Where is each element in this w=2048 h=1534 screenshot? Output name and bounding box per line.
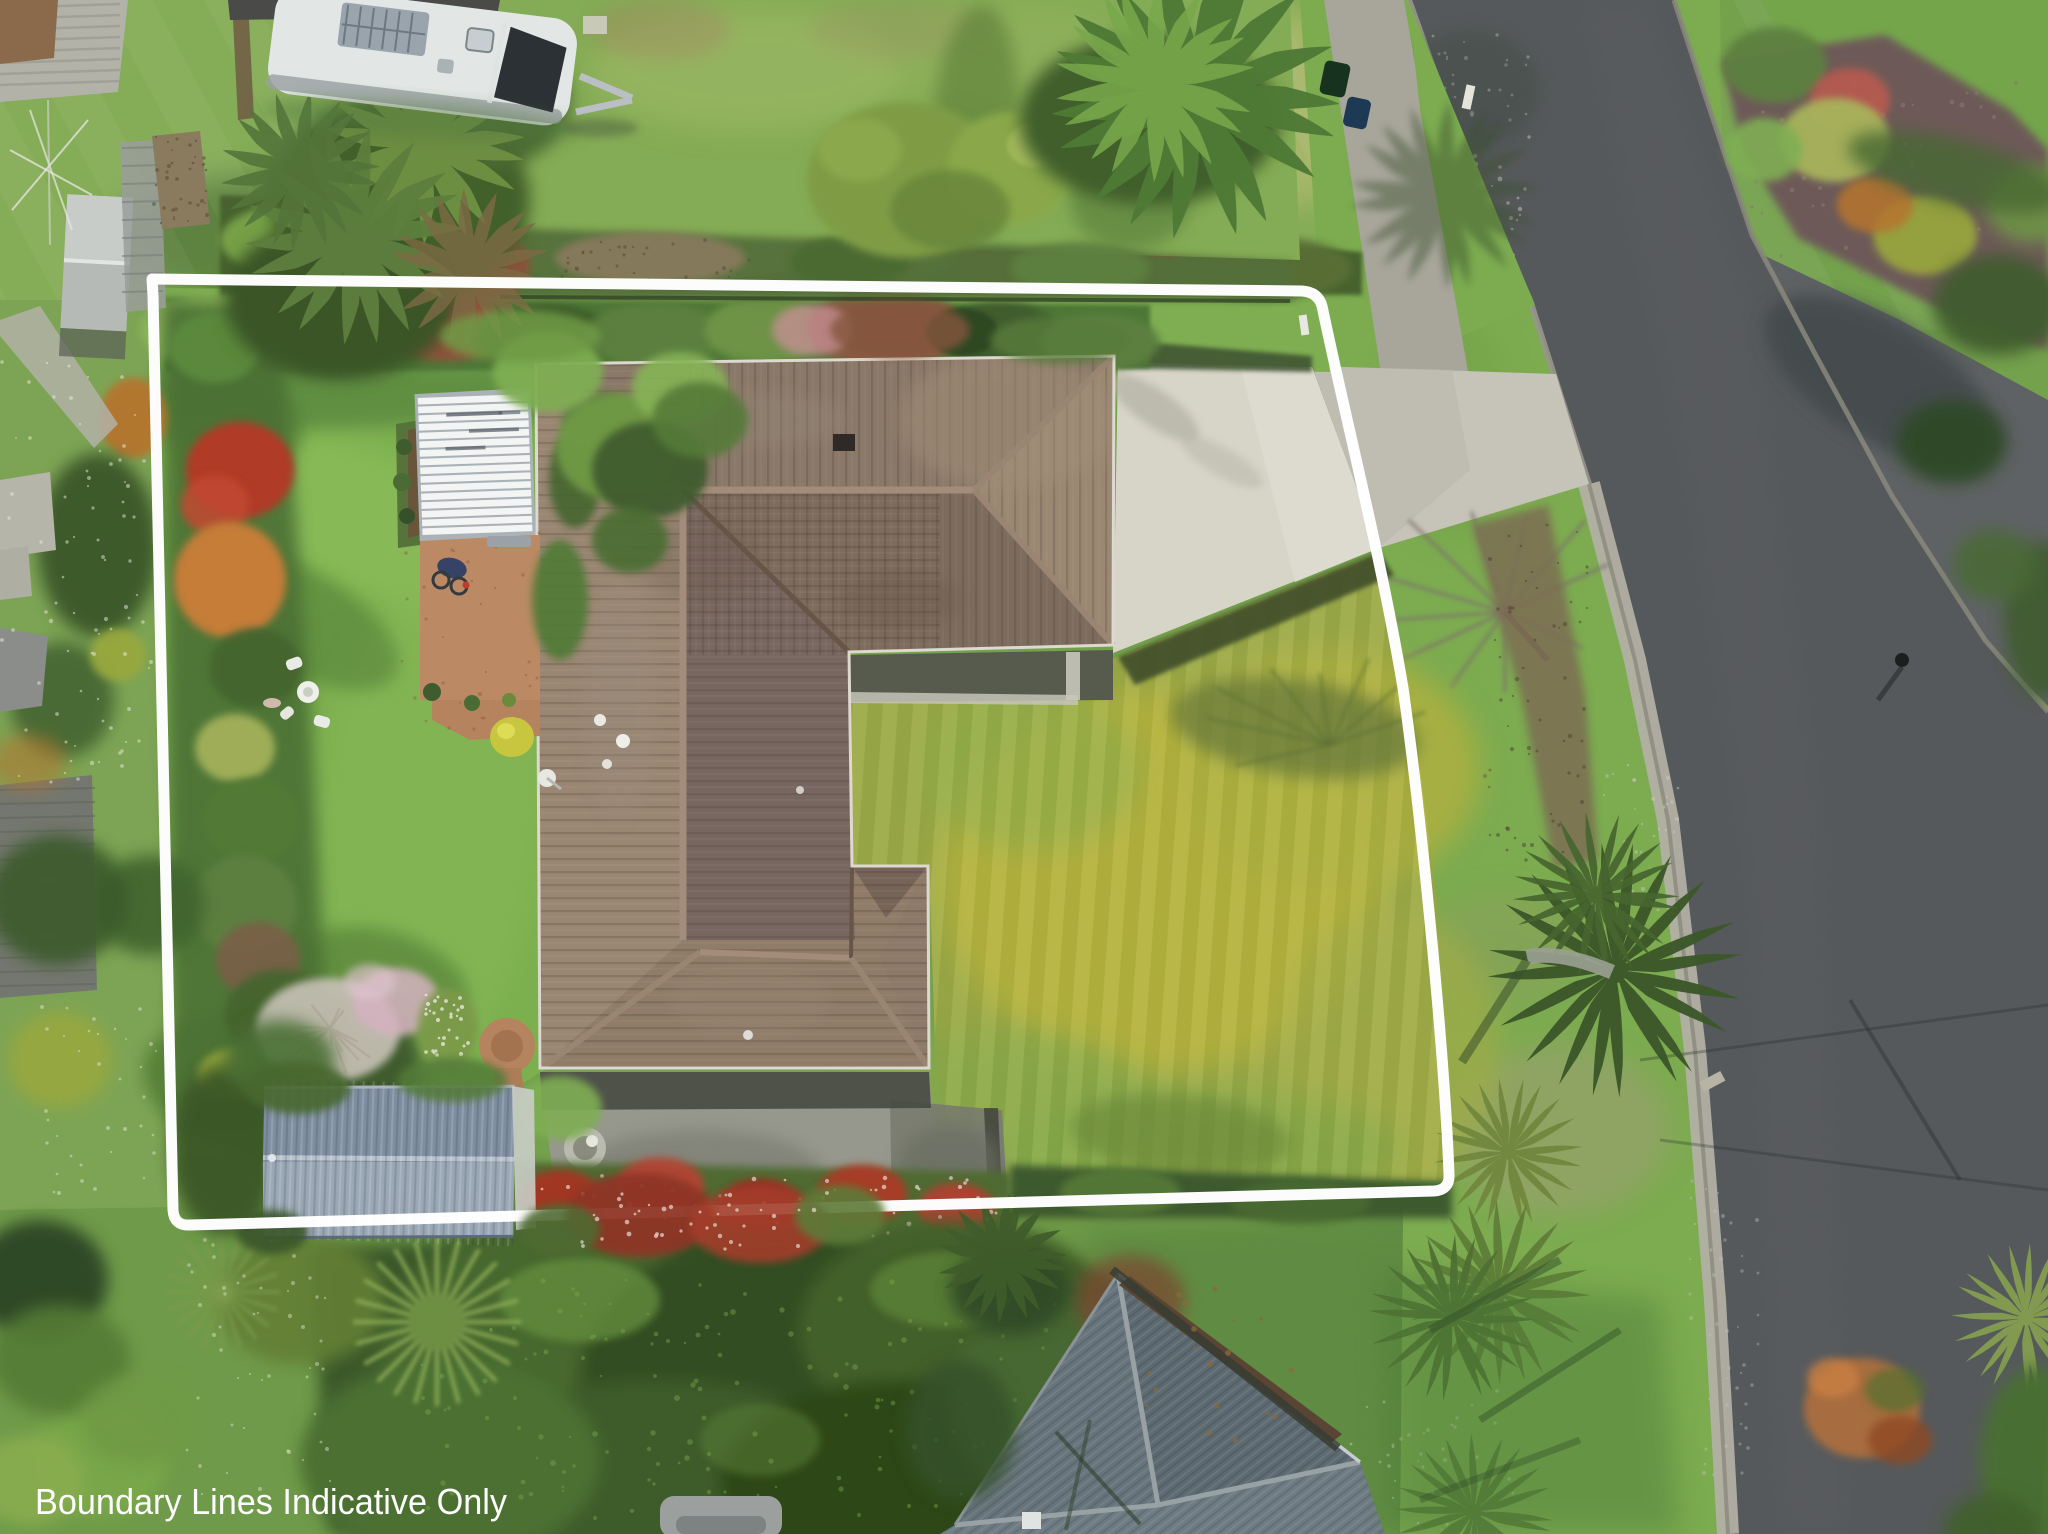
svg-text:Boundary Lines Indicative Only: Boundary Lines Indicative Only xyxy=(35,1481,507,1522)
